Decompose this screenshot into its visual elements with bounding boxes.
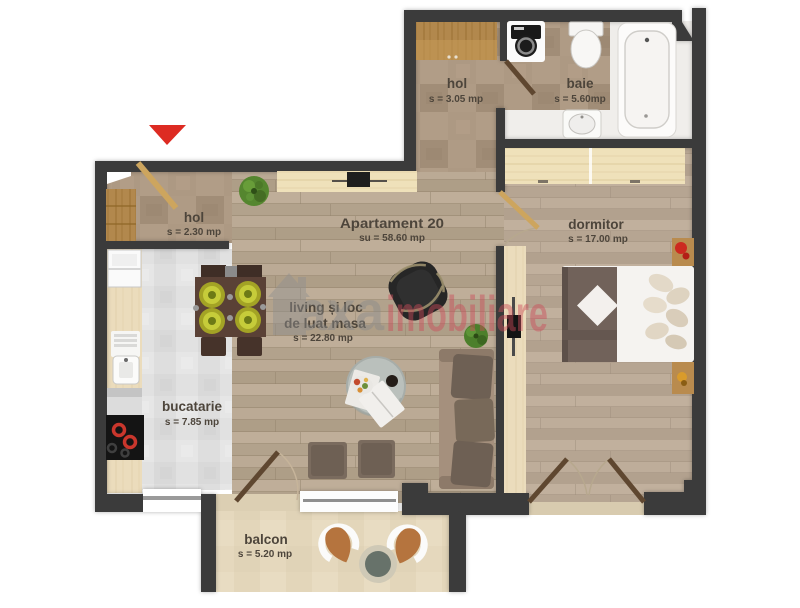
svg-text:s = 2.30 mp: s = 2.30 mp <box>167 227 221 238</box>
svg-text:balcon: balcon <box>244 532 288 547</box>
svg-text:s = 5.20 mp: s = 5.20 mp <box>238 549 292 560</box>
svg-text:s = 7.85 mp: s = 7.85 mp <box>165 417 219 428</box>
svg-text:su = 58.60 mp: su = 58.60 mp <box>359 233 425 244</box>
svg-text:s = 3.05 mp: s = 3.05 mp <box>429 94 483 105</box>
svg-text:Apartament 20: Apartament 20 <box>340 216 444 231</box>
svg-text:hol: hol <box>447 76 467 91</box>
svg-text:hol: hol <box>184 210 204 225</box>
svg-text:axa: axa <box>298 279 385 342</box>
svg-text:imobiliare: imobiliare <box>386 286 548 342</box>
svg-text:baie: baie <box>566 76 594 91</box>
svg-text:bucatarie: bucatarie <box>162 399 223 414</box>
svg-text:s = 5.60mp: s = 5.60mp <box>554 94 605 105</box>
svg-text:dormitor: dormitor <box>568 217 624 232</box>
svg-text:s = 17.00 mp: s = 17.00 mp <box>568 234 628 245</box>
